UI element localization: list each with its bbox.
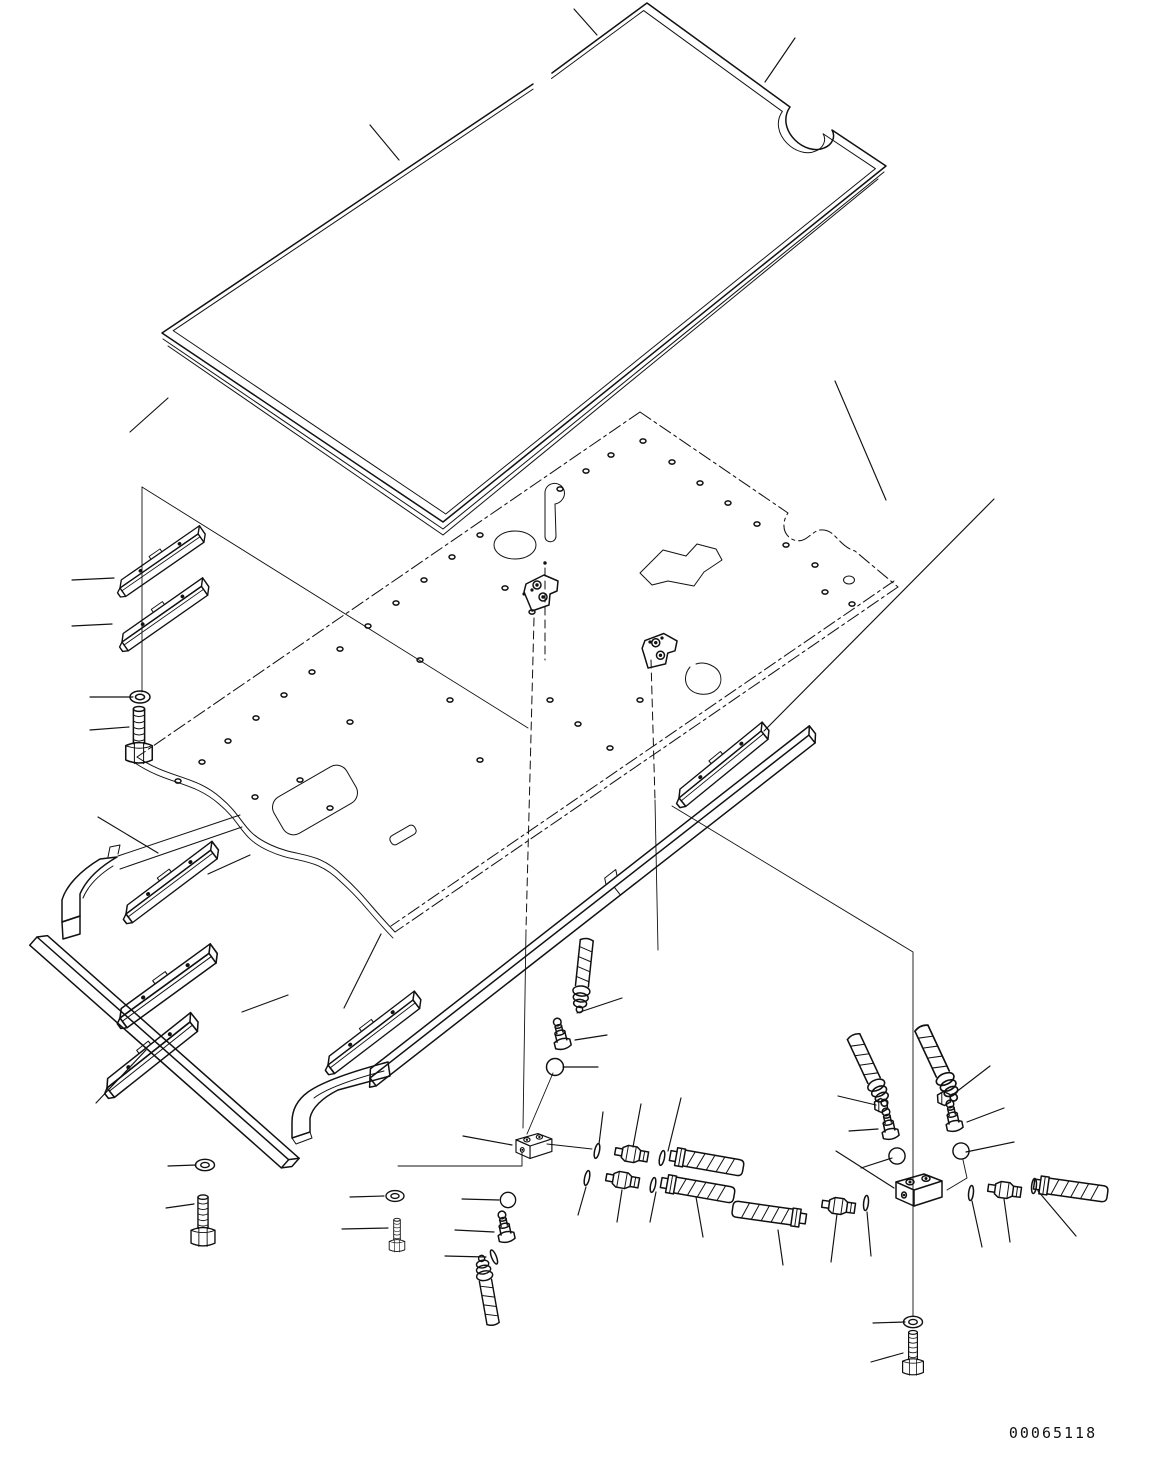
plate-slot-cutout — [388, 824, 417, 847]
hex-bolt — [389, 1218, 405, 1252]
leader-lines — [72, 578, 133, 730]
valve-fitting — [549, 1016, 572, 1050]
left-rail-assembly — [30, 815, 425, 1246]
union-fitting — [821, 1196, 856, 1216]
floor-mat — [130, 3, 886, 535]
floor-mat-thickness — [163, 172, 884, 529]
spacer-block — [109, 941, 221, 1031]
floor-frame-rail-right — [357, 721, 820, 1089]
bottom-right-hardware — [871, 1316, 923, 1375]
leader-lines — [764, 499, 994, 731]
hydraulic-hose — [669, 1147, 745, 1178]
right-fitting-group — [821, 1022, 1109, 1262]
ball-plug — [953, 1143, 969, 1159]
floor-mat-thickness-2 — [168, 179, 878, 535]
plate-hook-cutout — [545, 483, 564, 541]
leader-lines — [96, 817, 381, 1208]
plate-bolt-holes — [175, 439, 855, 810]
center-fitting-group — [342, 938, 807, 1327]
floor-mat-leader-lines — [130, 9, 886, 500]
exploded-parts-diagram: 00065118 — [0, 0, 1159, 1467]
o-ring — [658, 1150, 666, 1166]
o-ring — [968, 1185, 974, 1200]
o-ring — [649, 1177, 657, 1193]
o-ring — [489, 1249, 499, 1265]
leader-lines — [871, 1322, 905, 1362]
hydraulic-hose — [845, 1031, 894, 1109]
floor-mat-outline — [162, 3, 886, 522]
floor-plate — [135, 412, 898, 938]
valve-fitting — [493, 1210, 515, 1244]
drawing-number: 00065118 — [1009, 1424, 1097, 1442]
construction-lines — [142, 487, 967, 1316]
plate-rect-cutout — [268, 761, 362, 839]
hydraulic-hose — [660, 1174, 736, 1205]
flat-washer — [196, 1159, 215, 1170]
union-fitting — [987, 1180, 1022, 1200]
manifold-block — [896, 1174, 942, 1206]
floor-mat-inner-edge — [173, 11, 875, 514]
rail-end-curved — [62, 857, 117, 922]
spacer-block — [669, 719, 773, 809]
o-ring — [863, 1195, 869, 1210]
plate-hole-large — [494, 531, 536, 559]
spacer-block — [111, 523, 209, 599]
spacer-block — [318, 988, 425, 1077]
ball-plug — [547, 1059, 564, 1076]
union-fitting — [614, 1143, 649, 1164]
hydraulic-hose — [731, 1200, 807, 1228]
flat-washer — [386, 1191, 404, 1202]
o-ring — [593, 1143, 601, 1159]
right-rail-assembly — [292, 499, 994, 1144]
spacer-block — [96, 1009, 202, 1100]
plate-clip-bracket — [524, 575, 558, 611]
hydraulic-hose — [571, 938, 596, 1014]
hex-bolt — [191, 1195, 215, 1247]
hex-bolt — [903, 1330, 924, 1375]
ball-plug — [889, 1148, 905, 1164]
plate-clip-bracket-2 — [640, 631, 678, 670]
plate-z-cutout — [640, 544, 722, 586]
flat-washer — [904, 1316, 923, 1327]
parts-catalog-page: 00065118 — [0, 0, 1159, 1467]
valve-fitting — [941, 1099, 963, 1133]
o-ring — [583, 1170, 591, 1186]
ball-plug — [500, 1192, 515, 1207]
floor-frame-rail-left — [30, 931, 299, 1173]
plate-keyhole-cutout — [685, 663, 720, 694]
union-fitting — [605, 1169, 640, 1190]
manifold-block — [516, 1134, 552, 1159]
hydraulic-hose — [473, 1254, 501, 1326]
